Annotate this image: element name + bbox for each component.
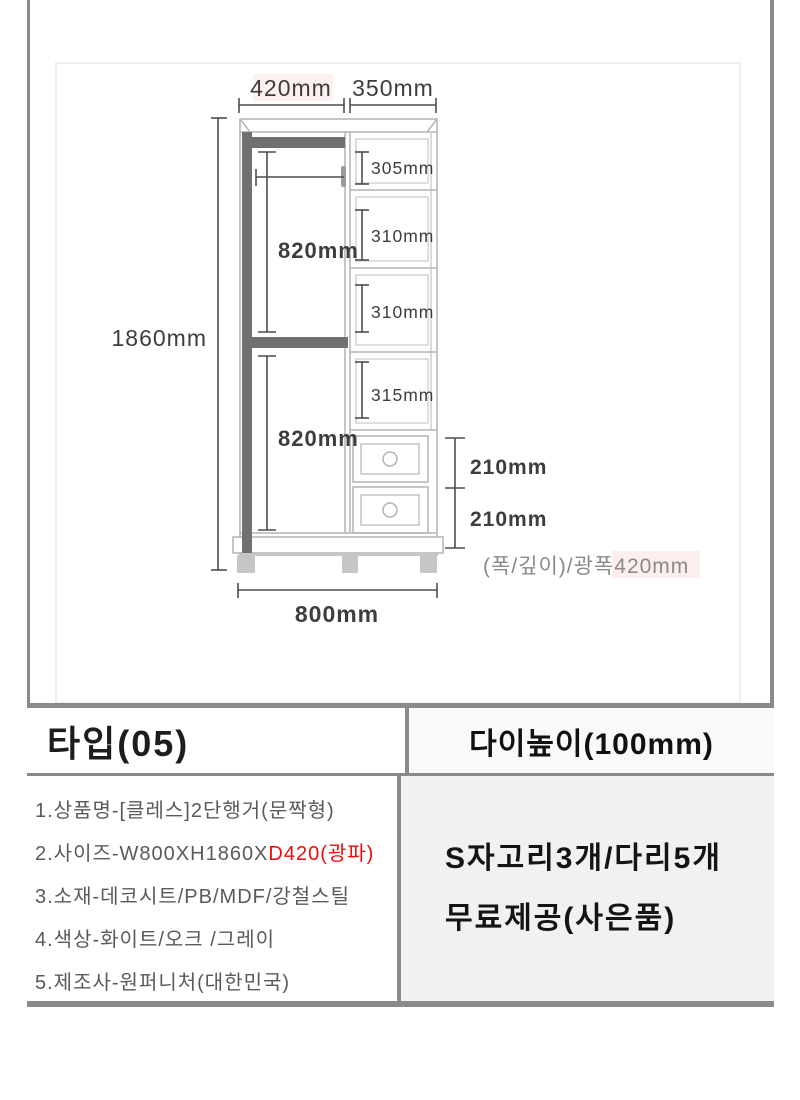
spec-table: 타입(05) 다이높이(100mm) 1.상품명-[클레스]2단행거(문짝형) … xyxy=(27,703,774,1007)
cabinet-feet xyxy=(237,555,437,573)
label-shelf-3: 310mm xyxy=(371,302,434,322)
spec-material: 3.소재-데코시트/PB/MDF/강철스틸 xyxy=(35,876,393,919)
label-shelf-2: 310mm xyxy=(371,226,434,246)
stand-height-label: 다이높이(100mm) xyxy=(469,719,714,763)
depth-note-text: (폭/깊이)/광폭 xyxy=(483,555,614,578)
spec-manufacturer: 5.제조사-원퍼니처(대한민국) xyxy=(35,962,393,1005)
gift-line-1: S자고리3개/다리5개 xyxy=(445,829,774,889)
label-shelf-4: 315mm xyxy=(371,385,434,405)
depth-note-value: 420mm xyxy=(614,555,689,578)
spec-color: 4.색상-화이트/오크 /그레이 xyxy=(35,919,393,962)
product-specs-cell: 1.상품명-[클레스]2단행거(문짝형) 2.사이즈-W800XH1860XD4… xyxy=(27,776,397,1001)
label-hanging-lower: 820mm xyxy=(278,426,359,451)
stand-height-header-cell: 다이높이(100mm) xyxy=(409,708,774,773)
label-total-width: 800mm xyxy=(295,601,379,627)
label-total-height: 1860mm xyxy=(112,325,207,351)
spec-product-name: 1.상품명-[클레스]2단행거(문짝형) xyxy=(35,790,393,833)
spec-size-depth-red: D420(광파) xyxy=(268,843,374,865)
label-depth-note: (폭/깊이)/광폭420mm xyxy=(483,555,689,578)
table-body-row: 1.상품명-[클레스]2단행거(문짝형) 2.사이즈-W800XH1860XD4… xyxy=(27,776,774,1001)
cabinet-dimension-diagram: 420mm 350mm 1860mm 820mm 820mm 305mm 310… xyxy=(0,0,800,710)
type-header-cell: 타입(05) xyxy=(27,708,405,773)
spec-size-prefix: 2.사이즈-W800XH1860X xyxy=(35,843,268,865)
spec-size: 2.사이즈-W800XH1860XD420(광파) xyxy=(35,833,393,876)
label-drawer-lower: 210mm xyxy=(470,508,547,531)
label-top-width-right: 350mm xyxy=(352,75,434,101)
label-top-width-left: 420mm xyxy=(250,75,332,101)
table-header-row: 타입(05) 다이높이(100mm) xyxy=(27,708,774,776)
label-drawer-upper: 210mm xyxy=(470,456,547,479)
label-shelf-1: 305mm xyxy=(371,158,434,178)
page: 420mm 350mm 1860mm 820mm 820mm 305mm 310… xyxy=(0,0,800,1100)
label-hanging-upper: 820mm xyxy=(278,238,359,263)
gift-line-2: 무료제공(사은품) xyxy=(445,889,774,949)
type-label: 타입(05) xyxy=(47,715,189,767)
gift-cell: S자고리3개/다리5개 무료제공(사은품) xyxy=(401,776,774,1001)
